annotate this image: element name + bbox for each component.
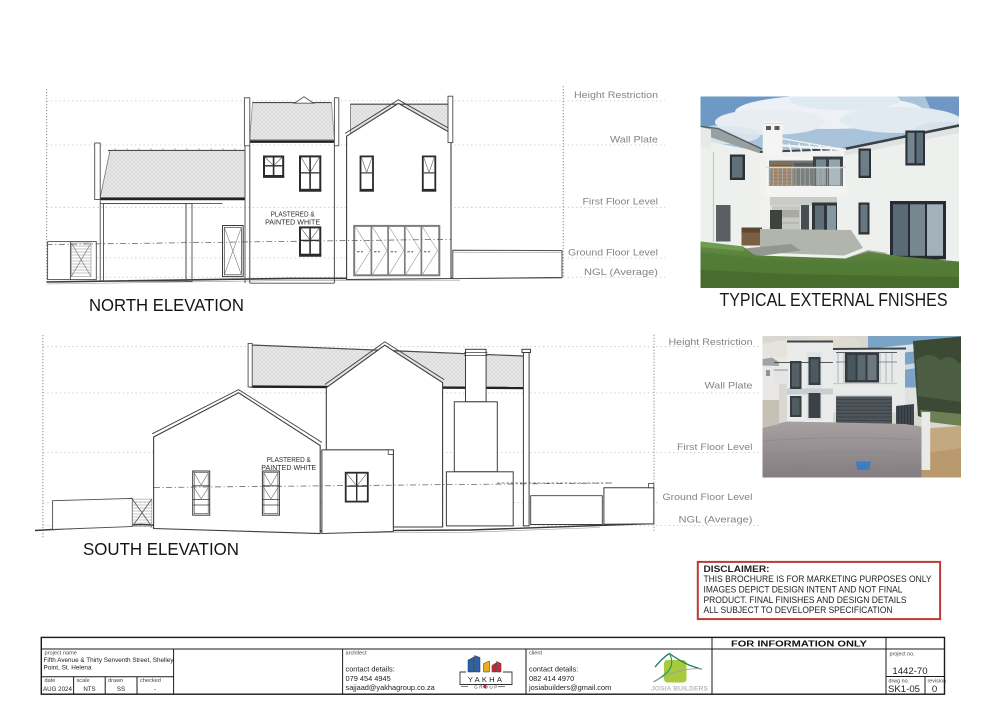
- svg-text:IMAGES DEPICT DESIGN INTENT AN: IMAGES DEPICT DESIGN INTENT AND NOT FINA…: [704, 584, 903, 594]
- svg-text:Height Restriction: Height Restriction: [574, 89, 658, 100]
- svg-text:THIS BROCHURE IS FOR MARKETING: THIS BROCHURE IS FOR MARKETING PURPOSES …: [704, 574, 932, 584]
- svg-text:architect: architect: [346, 651, 368, 657]
- svg-text:0: 0: [932, 684, 937, 695]
- svg-text:Wall Plate: Wall Plate: [610, 133, 658, 144]
- svg-text:Ground Floor Level: Ground Floor Level: [663, 491, 753, 502]
- svg-text:AUG 2024: AUG 2024: [43, 686, 72, 693]
- svg-text:contact details:: contact details:: [529, 665, 578, 674]
- svg-text:1442-70: 1442-70: [892, 666, 927, 677]
- svg-text:DISCLAIMER:: DISCLAIMER:: [704, 564, 770, 574]
- svg-text:SK1-05: SK1-05: [888, 684, 920, 695]
- svg-text:client: client: [529, 651, 543, 657]
- svg-text:PRODUCT. FINAL FINISHES AND DE: PRODUCT. FINAL FINISHES AND DESIGN DETAI…: [704, 595, 907, 605]
- svg-text:Height Restriction: Height Restriction: [669, 336, 753, 347]
- svg-text:NGL (Average): NGL (Average): [584, 266, 658, 277]
- svg-text:First Floor Level: First Floor Level: [583, 196, 659, 207]
- svg-text:josiabuilders@gmail.com: josiabuilders@gmail.com: [528, 683, 611, 692]
- svg-text:082 414 4970: 082 414 4970: [529, 674, 574, 683]
- svg-text:Ground Floor Level: Ground Floor Level: [568, 246, 658, 257]
- svg-text:project name: project name: [45, 651, 77, 657]
- svg-text:NGL (Average): NGL (Average): [679, 513, 753, 524]
- svg-text:NTS: NTS: [83, 686, 95, 693]
- svg-text:sajjaad@yakhagroup.co.za: sajjaad@yakhagroup.co.za: [346, 683, 436, 692]
- svg-text:PLASTERED &: PLASTERED &: [267, 457, 311, 464]
- svg-text:SS: SS: [117, 686, 125, 693]
- svg-text:project no.: project no.: [890, 652, 915, 658]
- svg-text:contact details:: contact details:: [346, 665, 395, 674]
- svg-text:Point, St. Helena: Point, St. Helena: [44, 664, 92, 671]
- svg-text:PLASTERED &: PLASTERED &: [271, 211, 315, 218]
- svg-text:Wall Plate: Wall Plate: [705, 380, 753, 391]
- svg-text:NORTH ELEVATION: NORTH ELEVATION: [89, 295, 244, 315]
- svg-text:YAKHA: YAKHA: [468, 675, 504, 684]
- svg-text:FOR INFORMATION ONLY: FOR INFORMATION ONLY: [731, 639, 867, 649]
- svg-text:-: -: [154, 686, 156, 693]
- svg-text:First Floor Level: First Floor Level: [677, 441, 753, 452]
- svg-text:PAINTED WHITE: PAINTED WHITE: [265, 219, 320, 226]
- svg-text:drawn: drawn: [108, 678, 123, 684]
- svg-text:scale: scale: [77, 678, 90, 684]
- svg-text:date: date: [45, 678, 56, 684]
- svg-text:ALL SUBJECT TO DEVELOPER SPECI: ALL SUBJECT TO DEVELOPER SPECIFICATION: [704, 605, 893, 615]
- svg-text:079 454 4945: 079 454 4945: [346, 674, 391, 683]
- svg-text:TYPICAL EXTERNAL FNISHES: TYPICAL EXTERNAL FNISHES: [720, 289, 948, 310]
- svg-text:JOSIA BUILDERS: JOSIA BUILDERS: [651, 686, 709, 693]
- svg-text:checked: checked: [140, 678, 161, 684]
- svg-text:SOUTH ELEVATION: SOUTH ELEVATION: [83, 539, 239, 559]
- svg-text:Fifth Avenue & Thirty Senventh: Fifth Avenue & Thirty Senventh Street, S…: [44, 657, 175, 664]
- svg-text:PAINTED WHITE: PAINTED WHITE: [261, 465, 316, 472]
